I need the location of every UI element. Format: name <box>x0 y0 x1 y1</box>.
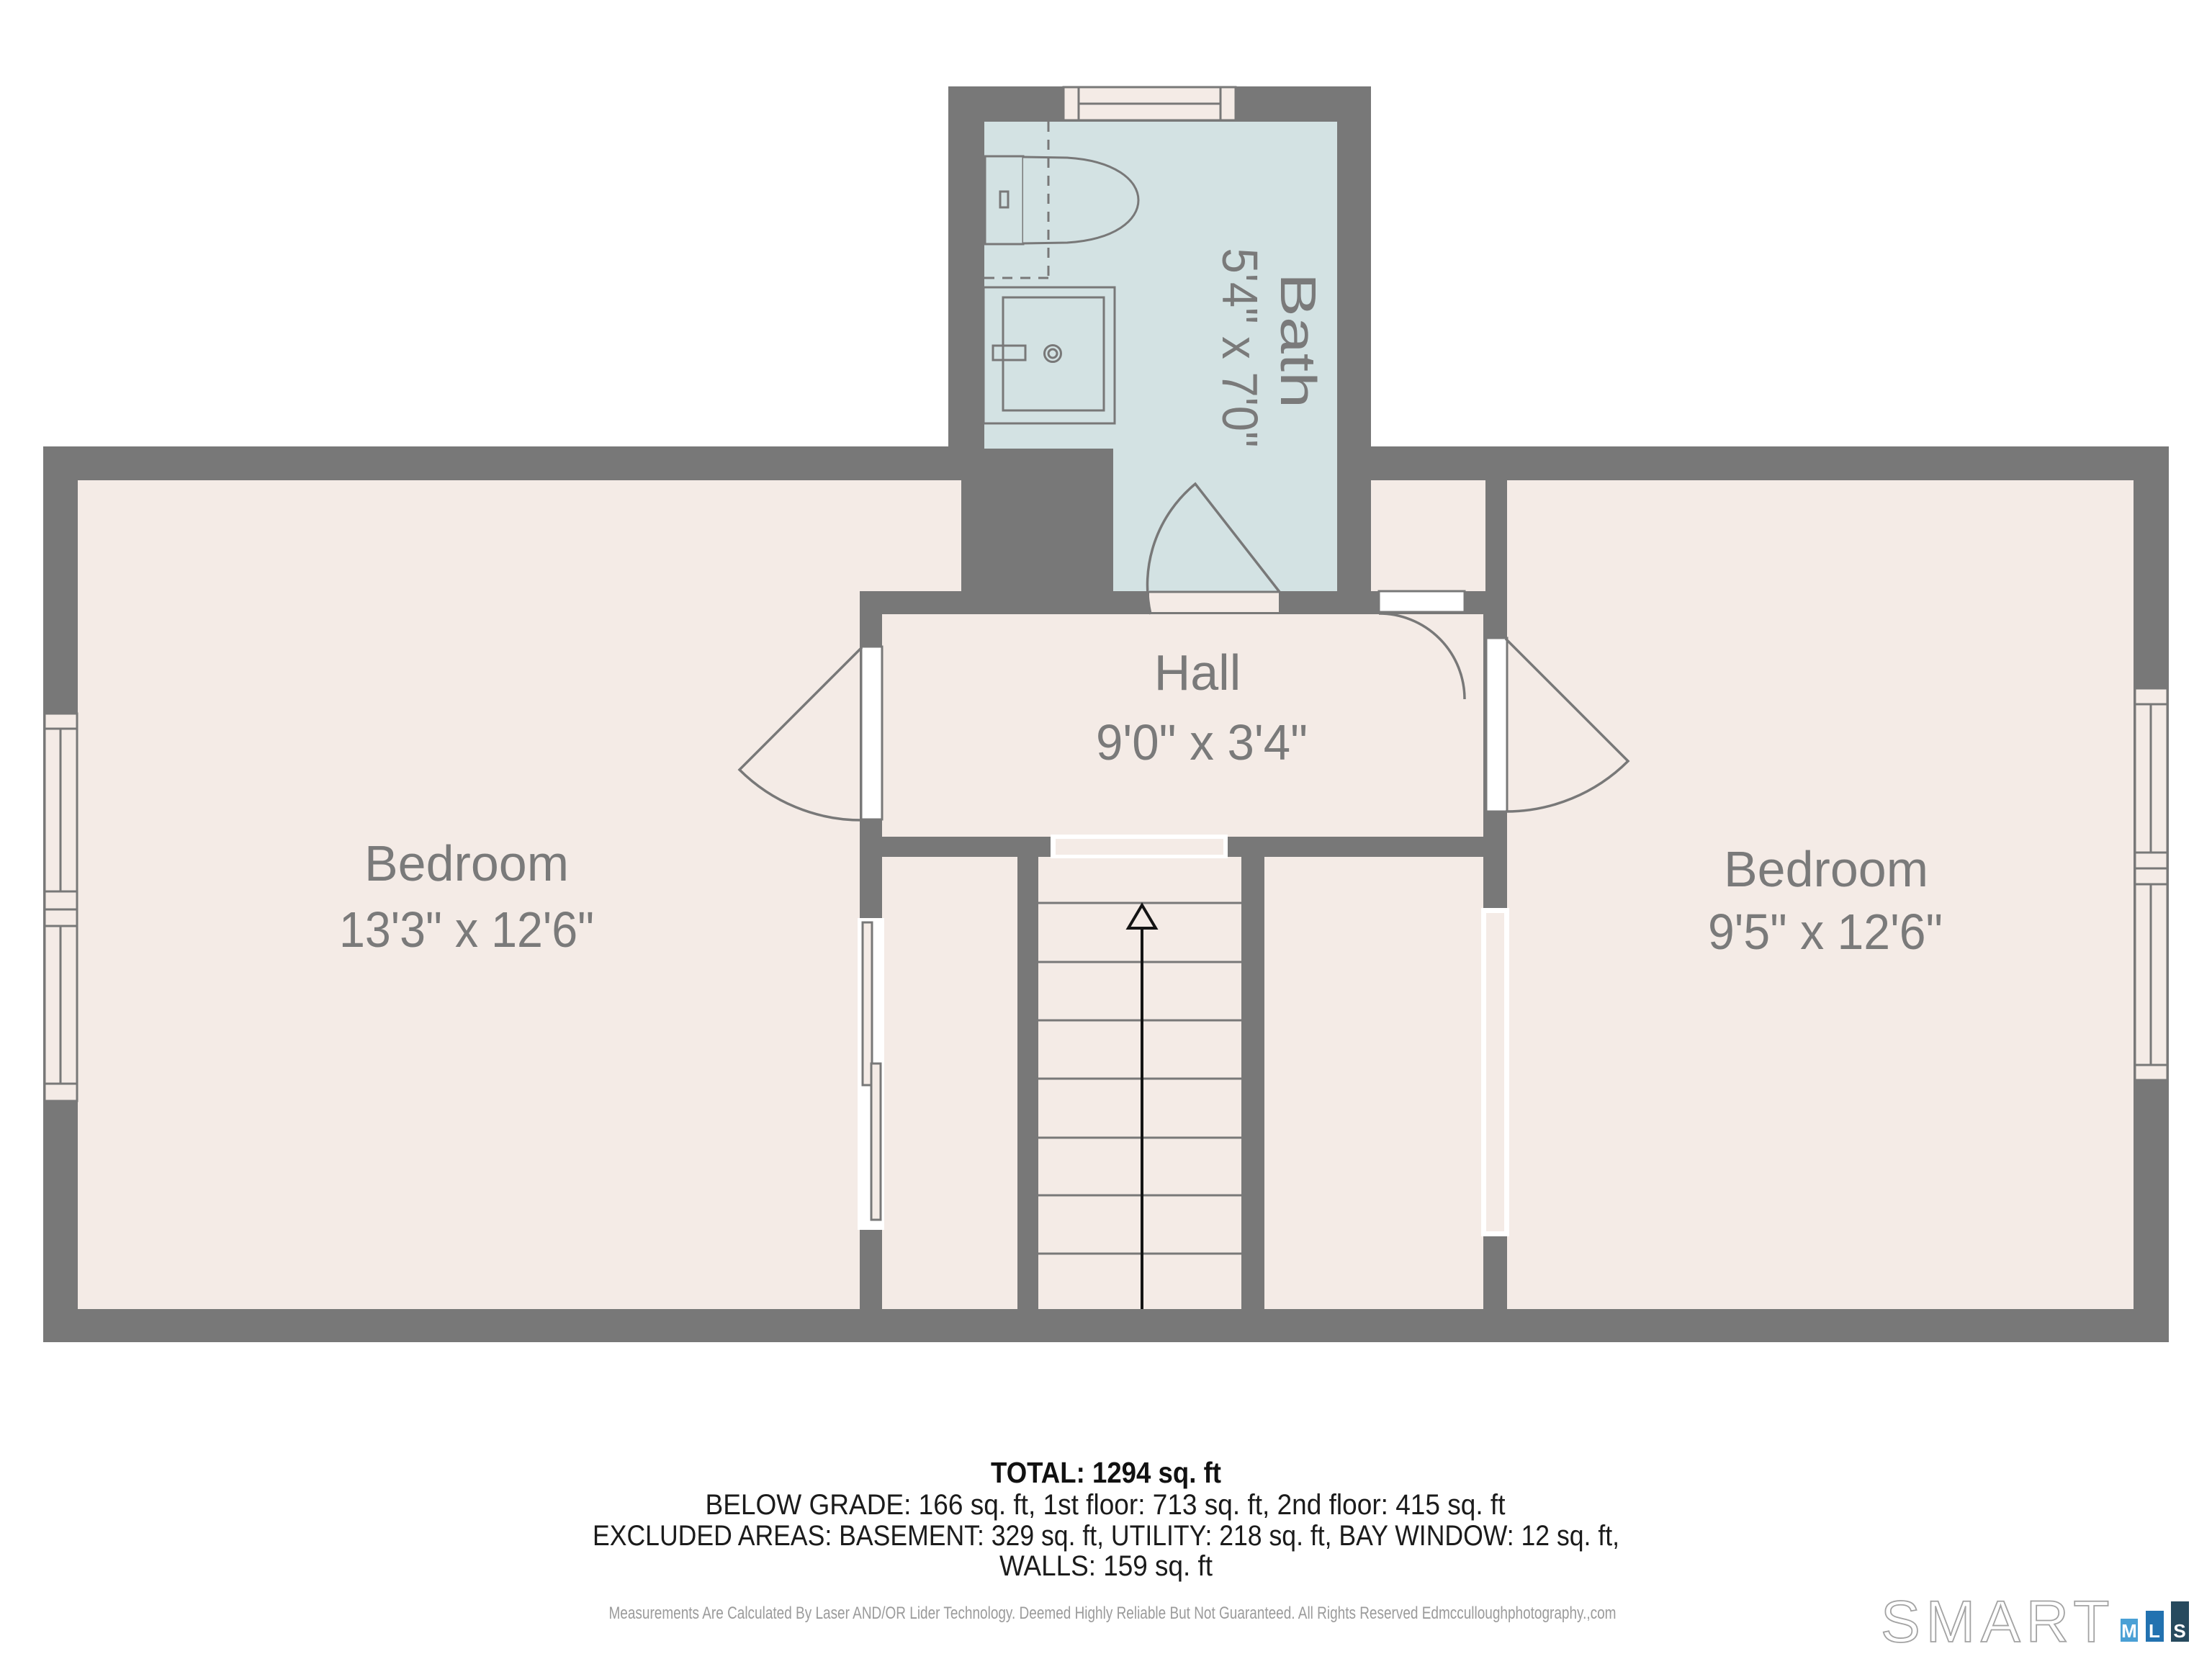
svg-text:Bedroom: Bedroom <box>1724 841 1928 897</box>
svg-text:WALLS: 159 sq. ft: WALLS: 159 sq. ft <box>999 1550 1213 1582</box>
svg-text:EXCLUDED AREAS: BASEMENT: 329: EXCLUDED AREAS: BASEMENT: 329 sq. ft, UT… <box>593 1520 1619 1552</box>
svg-text:BELOW GRADE: 166 sq. ft, 1st f: BELOW GRADE: 166 sq. ft, 1st floor: 713 … <box>706 1489 1506 1521</box>
svg-text:13'3" x 12'6": 13'3" x 12'6" <box>339 902 594 958</box>
svg-text:5'4" x 7'0": 5'4" x 7'0" <box>1212 248 1268 448</box>
svg-text:SMART: SMART <box>1881 1589 2116 1655</box>
svg-text:S: S <box>2173 1620 2185 1642</box>
svg-text:L: L <box>2149 1620 2160 1642</box>
svg-text:TOTAL: 1294 sq. ft: TOTAL: 1294 sq. ft <box>991 1456 1221 1489</box>
svg-text:9'0" x 3'4": 9'0" x 3'4" <box>1096 714 1308 770</box>
svg-text:Bedroom: Bedroom <box>364 835 569 891</box>
svg-text:M: M <box>2121 1620 2137 1642</box>
svg-text:9'5" x 12'6": 9'5" x 12'6" <box>1708 904 1943 960</box>
svg-text:Hall: Hall <box>1154 644 1241 701</box>
svg-text:Bath: Bath <box>1270 273 1326 408</box>
svg-text:Measurements Are Calculated By: Measurements Are Calculated By Laser AND… <box>609 1604 1617 1623</box>
